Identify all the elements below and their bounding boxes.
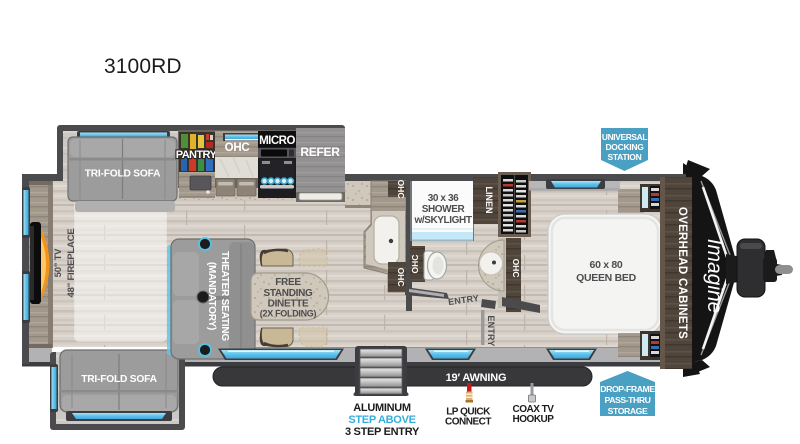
svg-text:30 x 36: 30 x 36 — [428, 193, 459, 204]
svg-text:QUEEN BED: QUEEN BED — [576, 272, 636, 284]
svg-text:PANTRY: PANTRY — [176, 149, 218, 161]
svg-text:3100RD: 3100RD — [104, 55, 182, 78]
svg-text:STANDING: STANDING — [263, 288, 313, 299]
svg-text:OVERHEAD CABINETS: OVERHEAD CABINETS — [676, 207, 688, 339]
svg-text:TRI-FOLD SOFA: TRI-FOLD SOFA — [85, 169, 161, 180]
svg-text:TRI-FOLD SOFA: TRI-FOLD SOFA — [81, 374, 157, 385]
svg-text:w/SKYLIGHT: w/SKYLIGHT — [413, 215, 471, 226]
svg-text:THEATER SEATING: THEATER SEATING — [219, 251, 230, 341]
svg-text:SHOWER: SHOWER — [422, 204, 466, 215]
svg-text:3 STEP ENTRY: 3 STEP ENTRY — [345, 426, 420, 438]
svg-text:DROP-FRAME: DROP-FRAME — [600, 384, 655, 394]
svg-text:FREE: FREE — [275, 277, 301, 288]
svg-text:OHC: OHC — [511, 259, 521, 278]
svg-text:PASS-THRU: PASS-THRU — [605, 395, 651, 405]
svg-text:LINEN: LINEN — [484, 187, 494, 214]
svg-text:(MANDATORY): (MANDATORY) — [206, 262, 217, 330]
svg-text:OHC: OHC — [225, 142, 250, 154]
svg-text:STORAGE: STORAGE — [608, 406, 648, 416]
svg-text:UNIVERSAL: UNIVERSAL — [602, 132, 647, 142]
svg-text:Imagine: Imagine — [703, 239, 726, 314]
svg-text:STATION: STATION — [608, 152, 642, 162]
svg-text:OHC: OHC — [396, 180, 406, 199]
svg-text:HOOKUP: HOOKUP — [513, 414, 555, 425]
svg-text:48" FIREPLACE: 48" FIREPLACE — [66, 229, 77, 298]
svg-text:DOCKING: DOCKING — [605, 142, 644, 152]
svg-text:60 x 80: 60 x 80 — [590, 259, 623, 271]
svg-text:19′ AWNING: 19′ AWNING — [446, 372, 507, 384]
svg-text:STEP ABOVE: STEP ABOVE — [348, 414, 415, 426]
svg-text:OHC: OHC — [410, 255, 420, 274]
svg-text:(2X FOLDING): (2X FOLDING) — [260, 309, 317, 319]
svg-text:CONNECT: CONNECT — [445, 417, 491, 428]
svg-text:MICRO: MICRO — [259, 135, 295, 147]
svg-text:ENTRY: ENTRY — [486, 315, 496, 346]
svg-text:OHC: OHC — [396, 268, 406, 287]
svg-text:ALUMINUM: ALUMINUM — [353, 402, 411, 414]
svg-text:50" TV: 50" TV — [53, 248, 64, 278]
svg-text:REFER: REFER — [300, 145, 340, 159]
